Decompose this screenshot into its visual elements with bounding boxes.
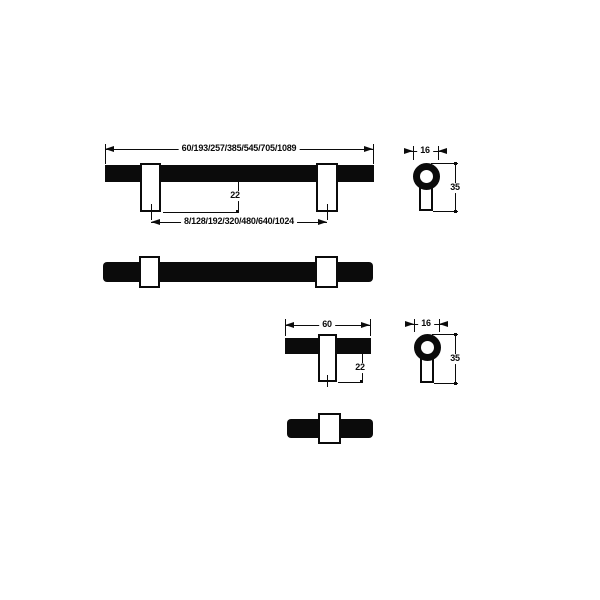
- knob-side-diameter-label: 16: [418, 319, 434, 329]
- pull-overall-length-label: 60/193/257/385/545/705/1089: [179, 144, 300, 154]
- knob-overall-length-label: 60: [319, 320, 335, 330]
- pull-side-diameter-label: 16: [417, 146, 433, 156]
- pull-projection-label: 22: [227, 191, 243, 201]
- arrowhead-right-icon: [405, 321, 414, 327]
- knob-side-ring: [414, 334, 441, 361]
- dimension-dot: [454, 382, 457, 385]
- pull-side-depth-label: 35: [447, 183, 463, 193]
- extension-line: [414, 319, 415, 332]
- technical-drawing-canvas: 60/193/257/385/545/705/1089 22 8/128/192…: [0, 0, 600, 600]
- dimension-dot: [454, 333, 457, 336]
- knob-side-depth-label: 35: [447, 354, 463, 364]
- knob-projection-label: 22: [352, 363, 368, 373]
- pull-hole-centres-label: 8/128/192/320/480/640/1024: [181, 217, 297, 227]
- knob-side-view: 16 35: [0, 0, 600, 600]
- arrowhead-left-icon: [439, 321, 448, 327]
